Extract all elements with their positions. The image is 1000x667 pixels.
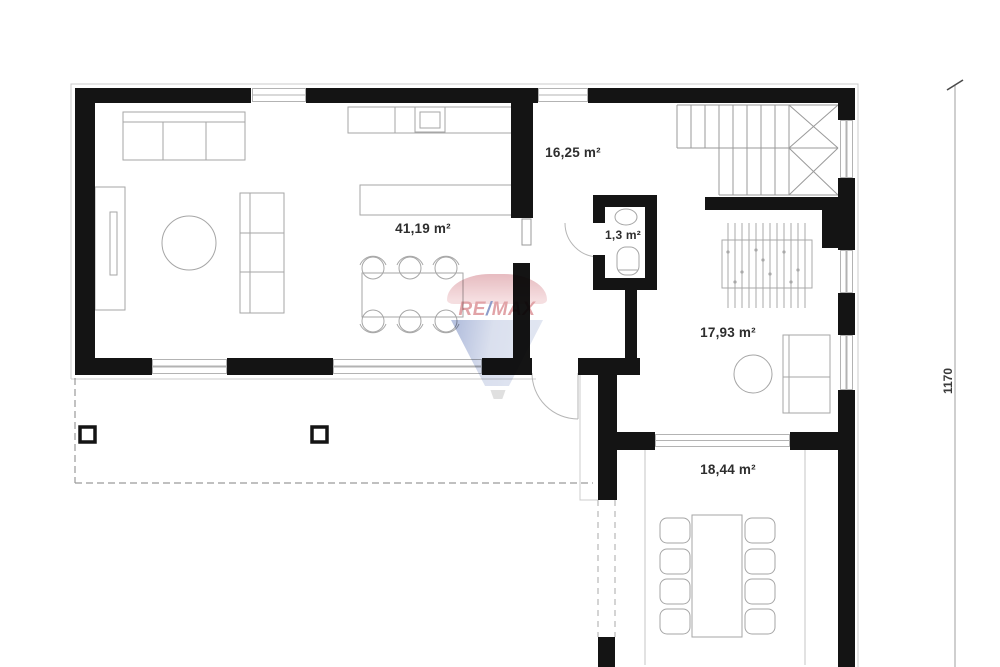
wall-opening-dashed (598, 500, 615, 637)
wc-wall (593, 207, 605, 223)
ceiling-lines (645, 450, 805, 665)
wall-segment (822, 208, 838, 248)
wall-segment (790, 432, 838, 450)
wall-segment (838, 178, 855, 250)
wc-sink (615, 209, 637, 225)
hanger-rods (728, 223, 805, 308)
wardrobe (722, 223, 812, 308)
sofa-horizontal (123, 112, 245, 160)
room-label-room-right: 17,93 m² (673, 325, 783, 340)
terrace-post (80, 427, 95, 442)
wc-wall (593, 278, 657, 290)
kitchen-counter (348, 107, 512, 133)
room-label-room-bottom: 18,44 m² (673, 462, 783, 477)
wall-segment (75, 88, 95, 375)
wall-segment (75, 358, 152, 375)
dimension-label: 1170 (941, 358, 955, 404)
window (152, 359, 227, 374)
round-table (734, 355, 772, 393)
terrace-boundary (75, 378, 593, 483)
window (840, 335, 853, 390)
terrace-posts (80, 427, 327, 442)
wall-segment (625, 290, 637, 358)
wall-segment (513, 263, 530, 358)
interior-door-leaf (522, 219, 531, 245)
wall-segment (838, 390, 855, 667)
wall-segment (588, 88, 855, 103)
cabinet (783, 335, 830, 413)
wall-segment (705, 197, 838, 210)
stairs (677, 105, 838, 195)
wall-segment (578, 358, 640, 375)
entrance-door-arc (532, 373, 578, 419)
room-label-living: 41,19 m² (368, 221, 478, 236)
wc-toilet (617, 247, 639, 275)
window (252, 88, 306, 102)
kitchen-island (360, 185, 512, 215)
wall-segment (482, 358, 532, 375)
wall-segment (838, 88, 855, 120)
wc-wall (593, 255, 605, 278)
wall-segment (838, 293, 855, 335)
wall-segment (615, 432, 655, 450)
sideboard (95, 187, 125, 310)
building-outline (71, 84, 858, 667)
coffee-table (162, 216, 216, 270)
room-label-hallway: 16,25 m² (518, 145, 628, 160)
chairs-bottom-room (660, 518, 775, 634)
floor-plan: 41,19 m² 16,25 m² 1,3 m² 17,93 m² 18,44 … (0, 0, 1000, 667)
wall-segment (75, 88, 251, 103)
window (655, 434, 790, 447)
window (333, 359, 482, 374)
terrace-post (312, 427, 327, 442)
doors (522, 219, 599, 419)
wc-wall (593, 195, 657, 207)
wall-segment (227, 358, 333, 375)
wall-segment (598, 637, 615, 667)
window (538, 88, 588, 102)
wall-segment (306, 88, 538, 103)
window (840, 250, 853, 293)
sofa-vertical (240, 193, 284, 313)
table-bottom-room (692, 515, 742, 637)
room-label-wc: 1,3 m² (568, 228, 678, 242)
window (840, 120, 853, 178)
stair-winders (789, 105, 838, 195)
dining-chairs (360, 256, 459, 333)
